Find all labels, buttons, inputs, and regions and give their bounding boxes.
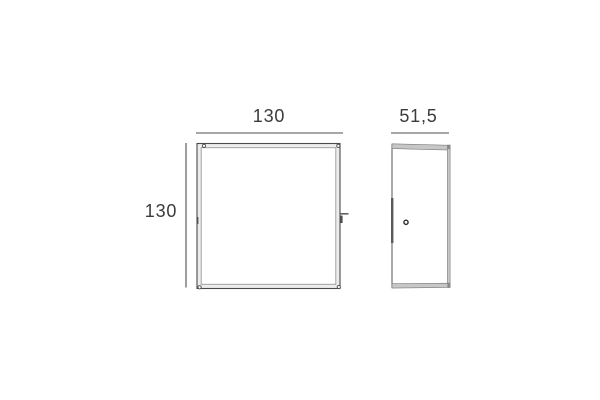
- front-height-label: 130: [145, 201, 177, 221]
- side-depth-label: 51,5: [399, 106, 437, 126]
- side-view-right-band: [447, 145, 450, 287]
- right-edge-seam-detail: [340, 216, 342, 223]
- technical-drawing-canvas: 130 130 51,5: [0, 0, 600, 400]
- front-view-inner-frame: [201, 148, 336, 285]
- front-width-label: 130: [253, 106, 285, 126]
- corner-screw-dot-bottom-left: [198, 286, 201, 289]
- side-view: [391, 144, 450, 288]
- corner-screw-dot-top-right: [337, 144, 340, 147]
- dimension-drawing: 130 130 51,5: [0, 0, 600, 400]
- side-view-bottom-band: [392, 283, 450, 288]
- front-view: [197, 144, 349, 289]
- side-view-bottom-right-nub: [447, 283, 450, 287]
- corner-screw-dot-top-left: [202, 144, 205, 147]
- side-view-screw-hole: [404, 220, 408, 224]
- side-view-top-right-nub: [447, 145, 450, 149]
- side-view-body: [392, 144, 450, 288]
- side-view-bracket-segment: [391, 198, 393, 243]
- left-edge-seam-detail: [197, 217, 199, 224]
- corner-screw-dot-bottom-right: [337, 285, 340, 288]
